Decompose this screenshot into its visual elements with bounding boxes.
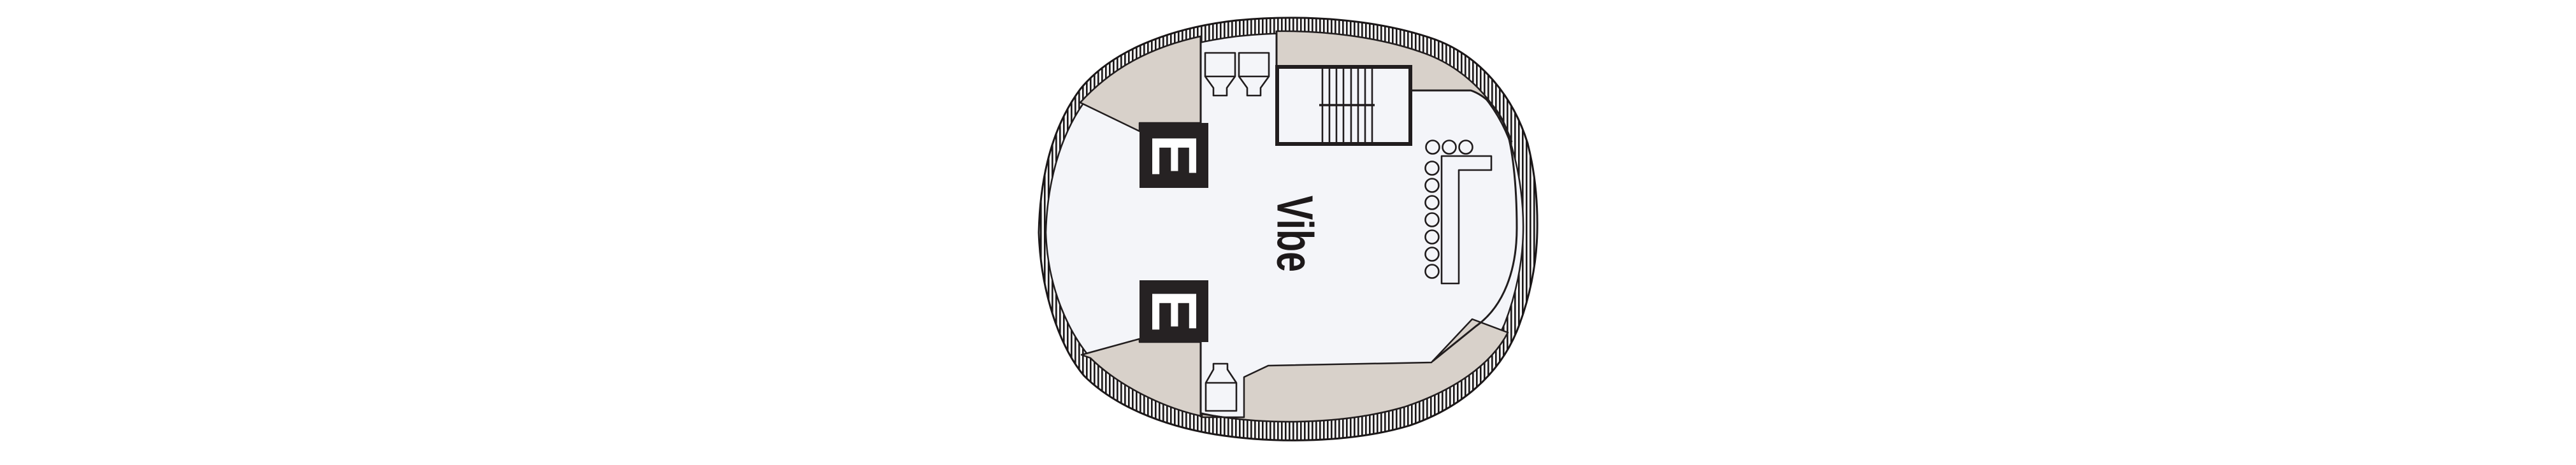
bar-stool [1426, 162, 1439, 175]
elevator-badge-upper: E [1138, 123, 1210, 188]
bar-stool [1426, 248, 1439, 261]
staircase-icon [1277, 67, 1410, 144]
elevator-label: E [1138, 134, 1210, 177]
elevator-badge-lower: E [1138, 280, 1210, 342]
deck-plan-diagram: E E Vibe [0, 0, 2576, 465]
bar-stool [1443, 141, 1456, 154]
bar-stool [1426, 141, 1440, 154]
bar-stool [1426, 196, 1439, 210]
deck-plan-canvas: E E Vibe [0, 0, 2576, 465]
elevator-label: E [1138, 290, 1210, 333]
venue-label: Vibe [1267, 196, 1324, 272]
bar-stool [1426, 179, 1439, 192]
bar-stool [1426, 231, 1439, 244]
bar-stool [1459, 141, 1473, 154]
bar-stool [1426, 213, 1439, 227]
bar-stool [1426, 265, 1439, 278]
